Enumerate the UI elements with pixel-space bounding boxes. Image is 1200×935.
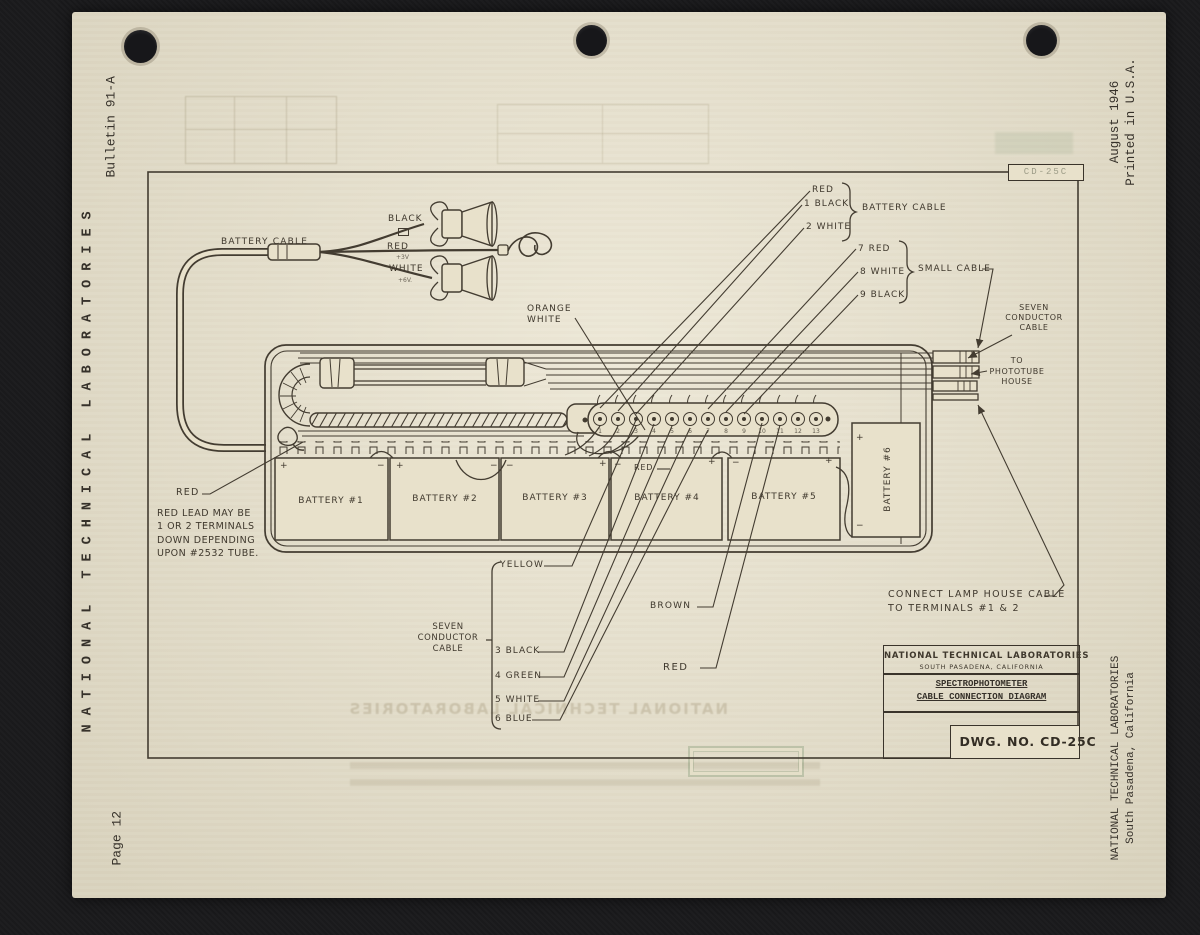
top-red-label: RED <box>812 185 834 195</box>
page-number: Page 12 <box>110 810 125 866</box>
punch-hole-left <box>124 30 157 63</box>
5white-wire-label: 5 WHITE <box>495 695 540 705</box>
title-block-title2: CABLE CONNECTION DIAGRAM <box>884 692 1079 702</box>
battery-5-label: BATTERY #5 <box>734 492 834 502</box>
red-lead-note: RED LEAD MAY BE 1 OR 2 TERMINALS DOWN DE… <box>157 507 267 561</box>
right-org-line2: South Pasadena, California <box>1124 653 1139 863</box>
top-8white-label: 8 WHITE <box>860 267 905 277</box>
print-date: August 1946 Printed in U.S.A. <box>1107 55 1139 189</box>
dwg-number-text: DWG. NO. CD-25C <box>960 734 1097 749</box>
battery-cable-label-left: BATTERY CABLE <box>221 237 308 247</box>
svg-text:12: 12 <box>794 428 802 435</box>
bulletin-number: Bulletin 91-A <box>104 76 119 178</box>
battery-clip-white <box>431 256 497 300</box>
right-org-line1: NATIONAL TECHNICAL LABORATORIES <box>1109 653 1124 863</box>
red-wire-marking: +3V <box>396 254 409 261</box>
battery-6-label: BATTERY #6 <box>883 429 893 529</box>
top-1black-label: 1 BLACK <box>804 199 849 209</box>
top-9black-label: 9 BLACK <box>860 290 905 300</box>
label-brackets <box>486 183 913 729</box>
print-date-line2: Printed in U.S.A. <box>1123 55 1139 189</box>
battery-4-plus: + <box>708 457 716 467</box>
black-terminal-symbol <box>398 228 409 236</box>
left-margin-organization: NATIONAL TECHNICAL LABORATORIES <box>81 203 96 733</box>
battery-1-label: BATTERY #1 <box>281 496 381 506</box>
brown-wire-label: BROWN <box>650 601 691 611</box>
battery-3-minus: − <box>506 461 514 471</box>
connect-lamp-house-note: CONNECT LAMP HOUSE CABLE TO TERMINALS #1… <box>888 588 1068 616</box>
inner-red-label: RED <box>634 463 653 472</box>
seven-conductor-cable-label-right: SEVEN CONDUCTOR CABLE <box>1002 303 1066 333</box>
battery-6-minus: − <box>856 521 864 531</box>
bottom-red-label: RED <box>663 662 688 673</box>
white-wire-label: WHITE <box>389 264 424 274</box>
battery-cable-wires <box>320 202 551 300</box>
battery-2-minus: − <box>490 461 498 471</box>
battery-6-plus: + <box>856 433 864 443</box>
left-red-label: RED <box>176 487 200 498</box>
battery-clip-black <box>431 202 497 246</box>
batteries-group <box>275 423 920 540</box>
battery-3-plus: + <box>599 459 607 469</box>
print-date-line1: August 1946 <box>1107 55 1123 189</box>
drawing-number-stamp: CD-25C <box>1008 164 1084 181</box>
title-block-city: SOUTH PASADENA, CALIFORNIA <box>884 663 1079 671</box>
3black-wire-label: 3 BLACK <box>495 646 540 656</box>
stamp-text: CD-25C <box>1009 165 1083 180</box>
6blue-wire-label: 6 BLUE <box>495 714 533 724</box>
scanned-page-background: { "page": { "margins": { "bulletin": "Bu… <box>0 0 1200 935</box>
svg-text:4: 4 <box>652 428 656 435</box>
top-7red-label: 7 RED <box>858 244 890 254</box>
battery-1-plus: + <box>280 461 288 471</box>
svg-text:8: 8 <box>724 428 728 435</box>
right-margin-organization: NATIONAL TECHNICAL LABORATORIES South Pa… <box>1109 653 1139 863</box>
title-block-title1: SPECTROPHOTOMETER <box>884 679 1079 689</box>
title-block-company: NATIONAL TECHNICAL LABORATORIES <box>884 651 1079 661</box>
white-wire-marking: +6V. <box>398 277 412 284</box>
yellow-wire-label: YELLOW <box>500 560 544 570</box>
punch-hole-center <box>576 25 607 56</box>
battery-4-label: BATTERY #4 <box>617 493 717 503</box>
title-block: NATIONAL TECHNICAL LABORATORIES SOUTH PA… <box>883 645 1080 759</box>
small-cable-label: SMALL CABLE <box>918 264 991 274</box>
punch-hole-right <box>1026 25 1057 56</box>
4green-wire-label: 4 GREEN <box>495 671 542 681</box>
red-lead-coil <box>508 233 551 256</box>
battery-2-plus: + <box>396 461 404 471</box>
seven-conductor-cable-label-left: SEVEN CONDUCTOR CABLE <box>406 622 490 655</box>
dwg-number-box: DWG. NO. CD-25C <box>950 725 1080 759</box>
exit-cables <box>933 351 979 400</box>
battery-5-plus: + <box>825 456 833 466</box>
svg-text:9: 9 <box>742 428 746 435</box>
battery-2-label: BATTERY #2 <box>395 494 495 504</box>
svg-text:13: 13 <box>812 428 820 435</box>
black-wire-label: BLACK <box>388 214 423 224</box>
battery-1-minus: − <box>377 461 385 471</box>
svg-text:1: 1 <box>598 428 602 435</box>
battery-cable-label-right: BATTERY CABLE <box>862 203 947 213</box>
to-phototube-house-label: TO PHOTOTUBE HOUSE <box>987 356 1047 388</box>
orange-white-label: ORANGE WHITE <box>527 304 572 326</box>
battery-3-label: BATTERY #3 <box>505 493 605 503</box>
braided-cable <box>310 413 567 427</box>
battery-cable-loop <box>180 244 320 448</box>
top-2white-label: 2 WHITE <box>806 222 851 232</box>
red-wire-label: RED <box>387 242 409 252</box>
battery-4-minus: − <box>614 460 622 470</box>
battery-5-minus: − <box>732 458 740 468</box>
